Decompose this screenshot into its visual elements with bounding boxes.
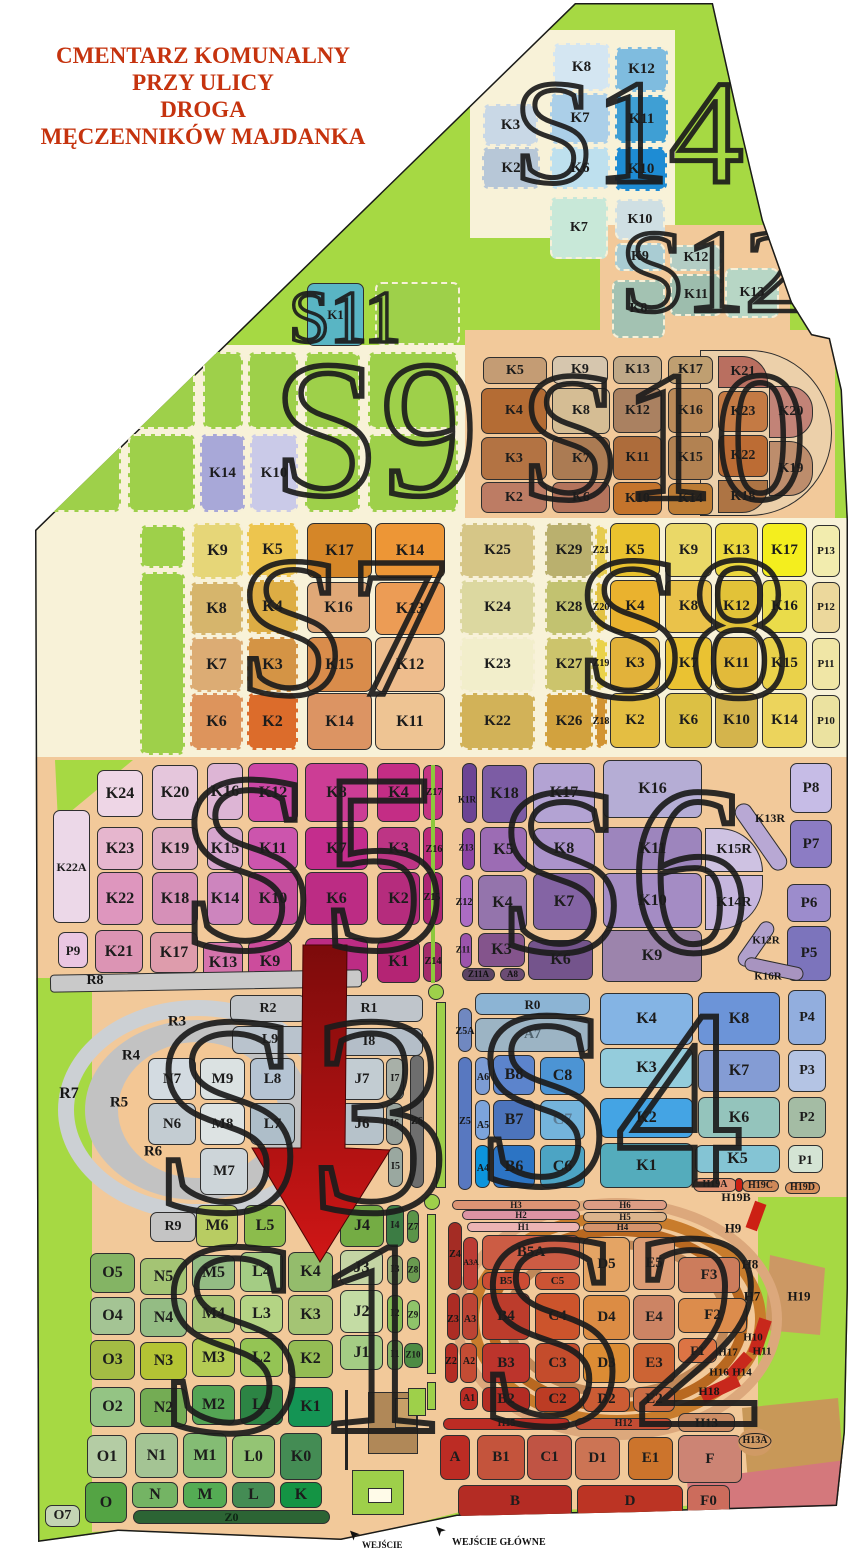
section-label-S8: S8 bbox=[574, 526, 791, 731]
section-label-layer: S14S12S11S9S10S7S8S5S6S3S4S1S2 bbox=[0, 0, 852, 1551]
cemetery-map: K8K12K3K7K11K2K6K10K7K10K9K12K8K11K13K1K… bbox=[0, 0, 852, 1551]
main-entrance-label: WEJŚCIE GŁÓWNE bbox=[452, 1537, 546, 1548]
section-label-S9: S9 bbox=[272, 333, 478, 528]
entrance-label: WEJŚCIE bbox=[362, 1540, 403, 1550]
plot-S9 bbox=[48, 352, 121, 429]
section-label-S7: S7 bbox=[236, 528, 447, 728]
section-label-S2: S2 bbox=[474, 1190, 770, 1470]
title-line-3: DROGA bbox=[4, 96, 402, 123]
title-line-2: PRZY ULICY bbox=[4, 69, 402, 96]
section-label-S5: S5 bbox=[177, 737, 446, 992]
main-entrance-arrow-icon: ➤ bbox=[430, 1520, 450, 1540]
section-label-S10: S10 bbox=[519, 345, 807, 530]
section-label-S1: S1 bbox=[155, 1199, 449, 1477]
map-title: CMENTARZ KOMUNALNY PRZY ULICY DROGA MĘCZ… bbox=[4, 42, 402, 150]
section-label-S14: S14 bbox=[513, 59, 743, 207]
title-line-1: CMENTARZ KOMUNALNY bbox=[4, 42, 402, 69]
map-area: K8K12K3K7K11K2K6K10K7K10K9K12K8K11K13K1K… bbox=[0, 0, 852, 1551]
section-label-S12: S12 bbox=[620, 213, 804, 331]
title-line-4: MĘCZENNIKÓW MAJDANKA bbox=[4, 123, 402, 150]
section-label-S6: S6 bbox=[495, 750, 748, 990]
